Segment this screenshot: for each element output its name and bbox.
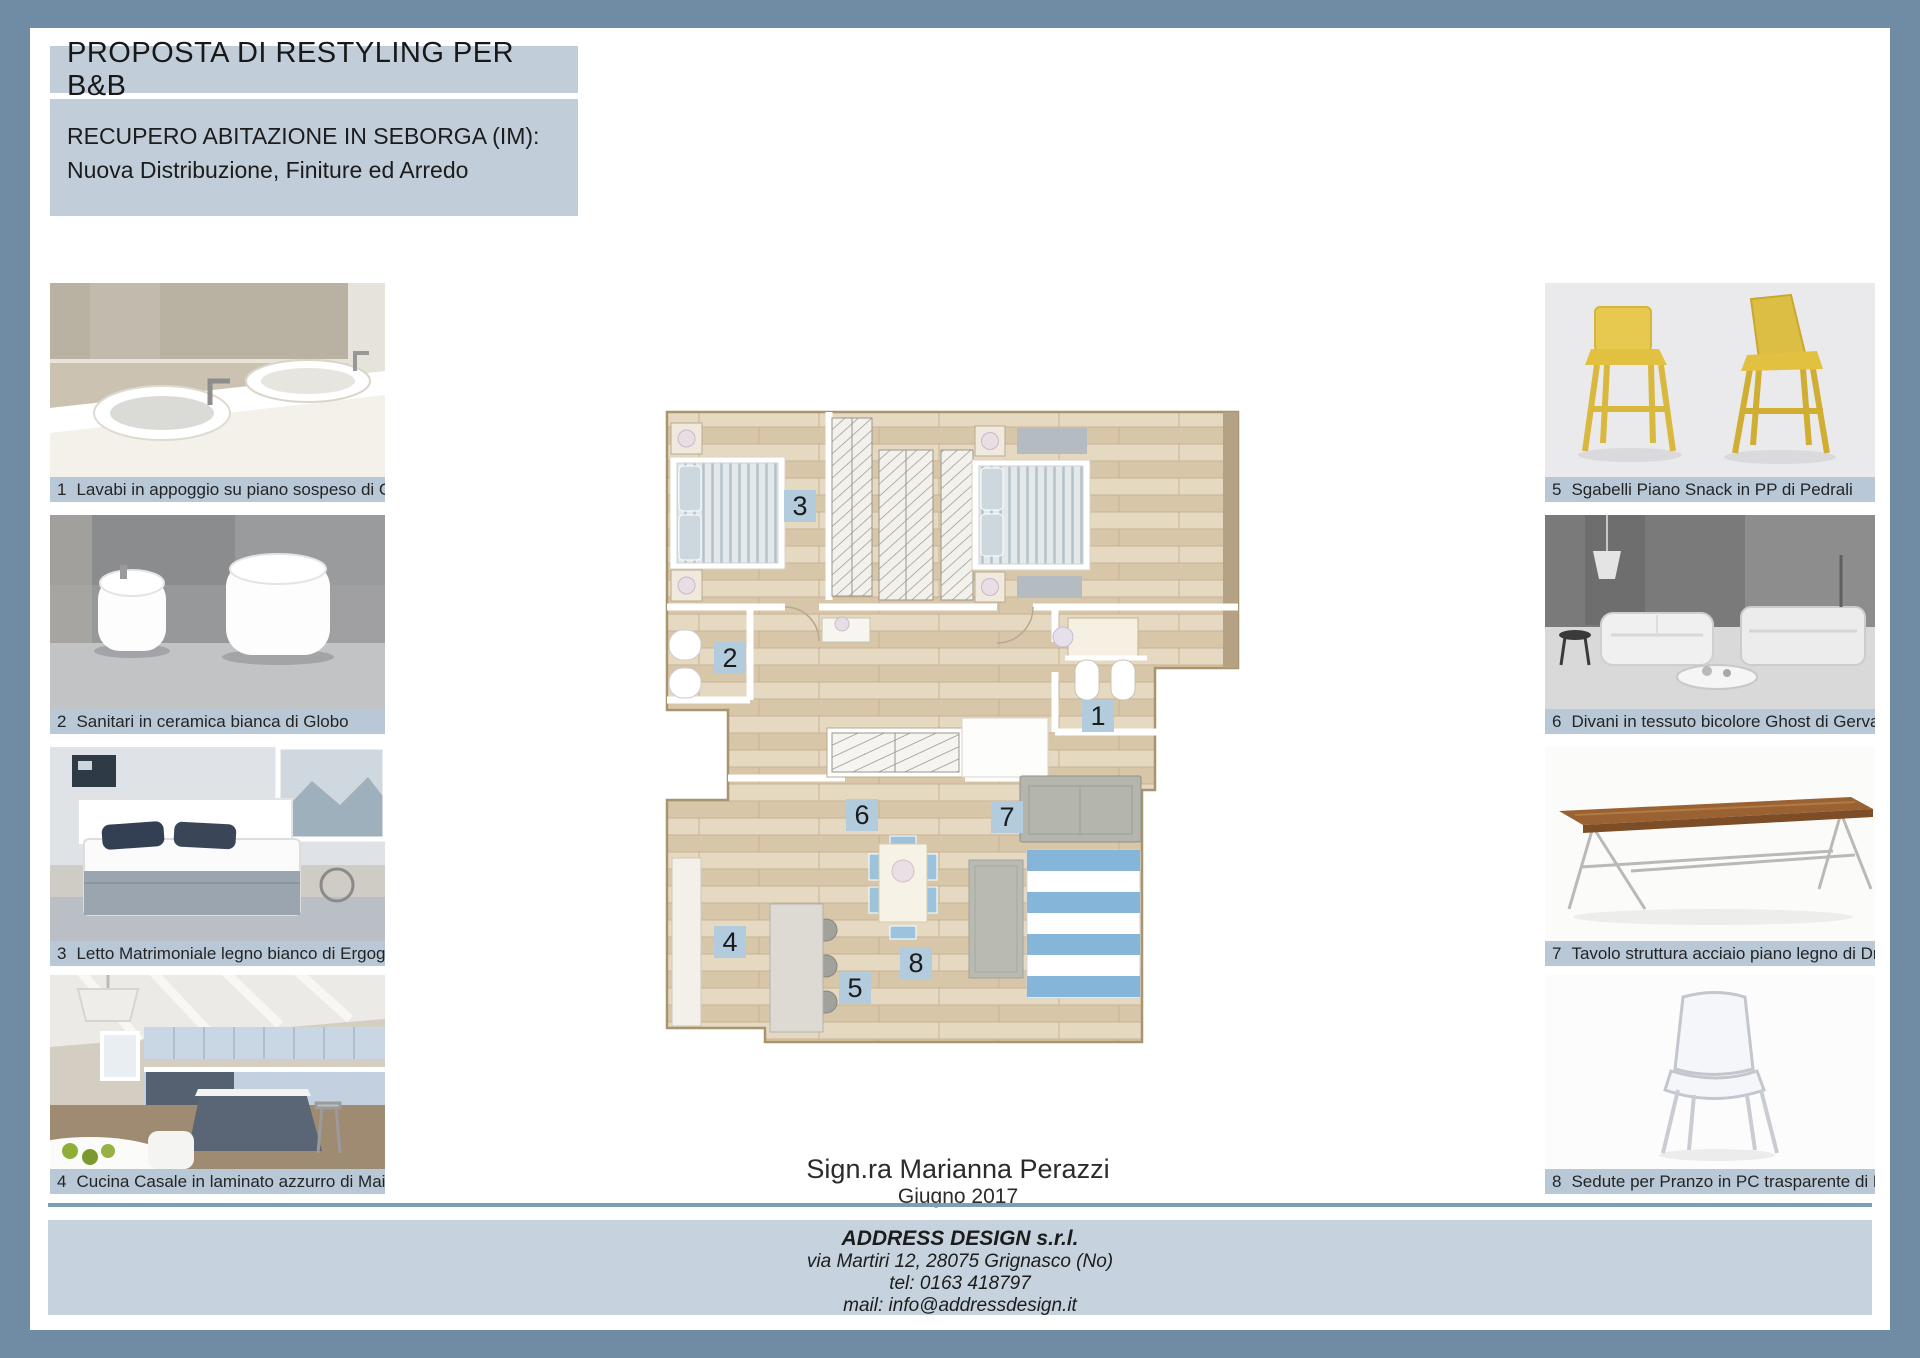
product-block-lavabi: 1 Lavabi in appoggio su piano sospeso di… [50,283,385,502]
product-photo-sedute [1545,975,1875,1169]
sofas-illustration [1545,515,1875,709]
footer-address: via Martiri 12, 28075 Grignasco (No) [48,1251,1872,1273]
caption-text: Sanitari in ceramica bianca di Globo [76,712,348,732]
page-border-bottom [0,1330,1920,1358]
page-subtitle: RECUPERO ABITAZIONE IN SEBORGA (IM): Nuo… [50,99,578,216]
caption-number: 3 [50,944,76,964]
caption-number: 1 [50,480,76,500]
stools-illustration [1545,283,1875,477]
plan-rug-gray [969,860,1023,978]
caption-tavolo: 7 Tavolo struttura acciaio piano legno d… [1545,941,1875,966]
plan-marker-2: 2 [714,642,746,674]
caption-number: 7 [1545,944,1571,964]
plan-marker-1: 1 [1082,700,1114,732]
caption-number: 8 [1545,1172,1571,1192]
caption-letto: 3 Letto Matrimoniale legno bianco di Erg… [50,941,385,966]
floor-plan-drawing [665,410,1240,1045]
plan-marker-8: 8 [900,947,932,979]
caption-text: Letto Matrimoniale legno bianco di Ergog… [76,944,385,964]
client-name: Sign.ra Marianna Perazzi [758,1154,1158,1184]
page-subtitle-line2: Nuova Distribuzione, Finiture ed Arredo [67,153,578,187]
plan-sofa [1020,776,1141,842]
plan-marker-6: 6 [846,799,878,831]
plan-closets-center [879,450,973,600]
transparent-chair-illustration [1545,975,1875,1169]
plan-marker-5: 5 [839,972,871,1004]
product-photo-sgabelli [1545,283,1875,477]
footer-company: ADDRESS DESIGN s.r.l. [48,1227,1872,1251]
caption-number: 5 [1545,480,1571,500]
plan-right-wall-band [1223,412,1238,668]
caption-number: 2 [50,712,76,732]
caption-text: Lavabi in appoggio su piano sospeso di G… [76,480,385,500]
bed-illustration [50,747,385,941]
page-title: PROPOSTA DI RESTYLING PER B&B [50,46,578,93]
page-border-left [0,0,30,1358]
washbasin-illustration [50,283,385,477]
client-block: Sign.ra Marianna Perazzi Giugno 2017 [758,1154,1158,1210]
footer: ADDRESS DESIGN s.r.l. via Martiri 12, 28… [48,1220,1872,1315]
product-block-cucina: 4 Cucina Casale in laminato azzurro di M… [50,975,385,1194]
caption-divani: 6 Divani in tessuto bicolore Ghost di Ge… [1545,709,1875,734]
caption-sgabelli: 5 Sgabelli Piano Snack in PP di Pedrali [1545,477,1875,502]
caption-cucina: 4 Cucina Casale in laminato azzurro di M… [50,1169,385,1194]
footer-tel: tel: 0163 418797 [48,1273,1872,1295]
plan-void-room [962,718,1048,777]
caption-number: 4 [50,1172,76,1192]
presentation-board: PROPOSTA DI RESTYLING PER B&B RECUPERO A… [0,0,1920,1358]
product-photo-cucina [50,975,385,1169]
product-block-sedute: 8 Sedute per Pranzo in PC trasparente di… [1545,975,1875,1194]
product-block-divani: 6 Divani in tessuto bicolore Ghost di Ge… [1545,515,1875,734]
plan-kitchen-island [770,904,837,1032]
plan-marker-7: 7 [991,801,1023,833]
plan-rug-striped [1027,850,1140,998]
caption-text: Cucina Casale in laminato azzurro di Mai… [76,1172,385,1192]
product-photo-tavolo [1545,747,1875,941]
page-subtitle-line1: RECUPERO ABITAZIONE IN SEBORGA (IM): [67,119,578,153]
sanitaryware-illustration [50,515,385,709]
caption-text: Sedute per Pranzo in PC trasparente di P… [1571,1172,1875,1192]
plan-shower-sink [822,617,870,642]
plan-pantry [672,858,701,1026]
page-border-right [1890,0,1920,1358]
plan-marker-4: 4 [714,926,746,958]
product-photo-letto [50,747,385,941]
caption-sedute: 8 Sedute per Pranzo in PC trasparente di… [1545,1169,1875,1194]
product-block-tavolo: 7 Tavolo struttura acciaio piano legno d… [1545,747,1875,966]
product-block-sgabelli: 5 Sgabelli Piano Snack in PP di Pedrali [1545,283,1875,502]
footer-mail: mail: info@addressdesign.it [48,1295,1872,1317]
table-illustration [1545,747,1875,941]
product-photo-divani [1545,515,1875,709]
kitchen-illustration [50,975,385,1169]
product-block-letto: 3 Letto Matrimoniale legno bianco di Erg… [50,747,385,966]
page-border-top [0,0,1920,28]
plan-wardrobe-long [827,728,964,777]
plan-marker-3: 3 [784,490,816,522]
plan-wardrobe-left [832,418,872,596]
caption-sanitari: 2 Sanitari in ceramica bianca di Globo [50,709,385,734]
caption-text: Divani in tessuto bicolore Ghost di Gerv… [1571,712,1875,732]
caption-text: Tavolo struttura acciaio piano legno di … [1571,944,1875,964]
product-photo-sanitari [50,515,385,709]
caption-text: Sgabelli Piano Snack in PP di Pedrali [1571,480,1852,500]
product-block-sanitari: 2 Sanitari in ceramica bianca di Globo [50,515,385,734]
product-photo-lavabi [50,283,385,477]
caption-lavabi: 1 Lavabi in appoggio su piano sospeso di… [50,477,385,502]
footer-rule [48,1203,1872,1207]
caption-number: 6 [1545,712,1571,732]
floor-plan: 1 2 3 4 5 6 7 8 [665,410,1240,1045]
